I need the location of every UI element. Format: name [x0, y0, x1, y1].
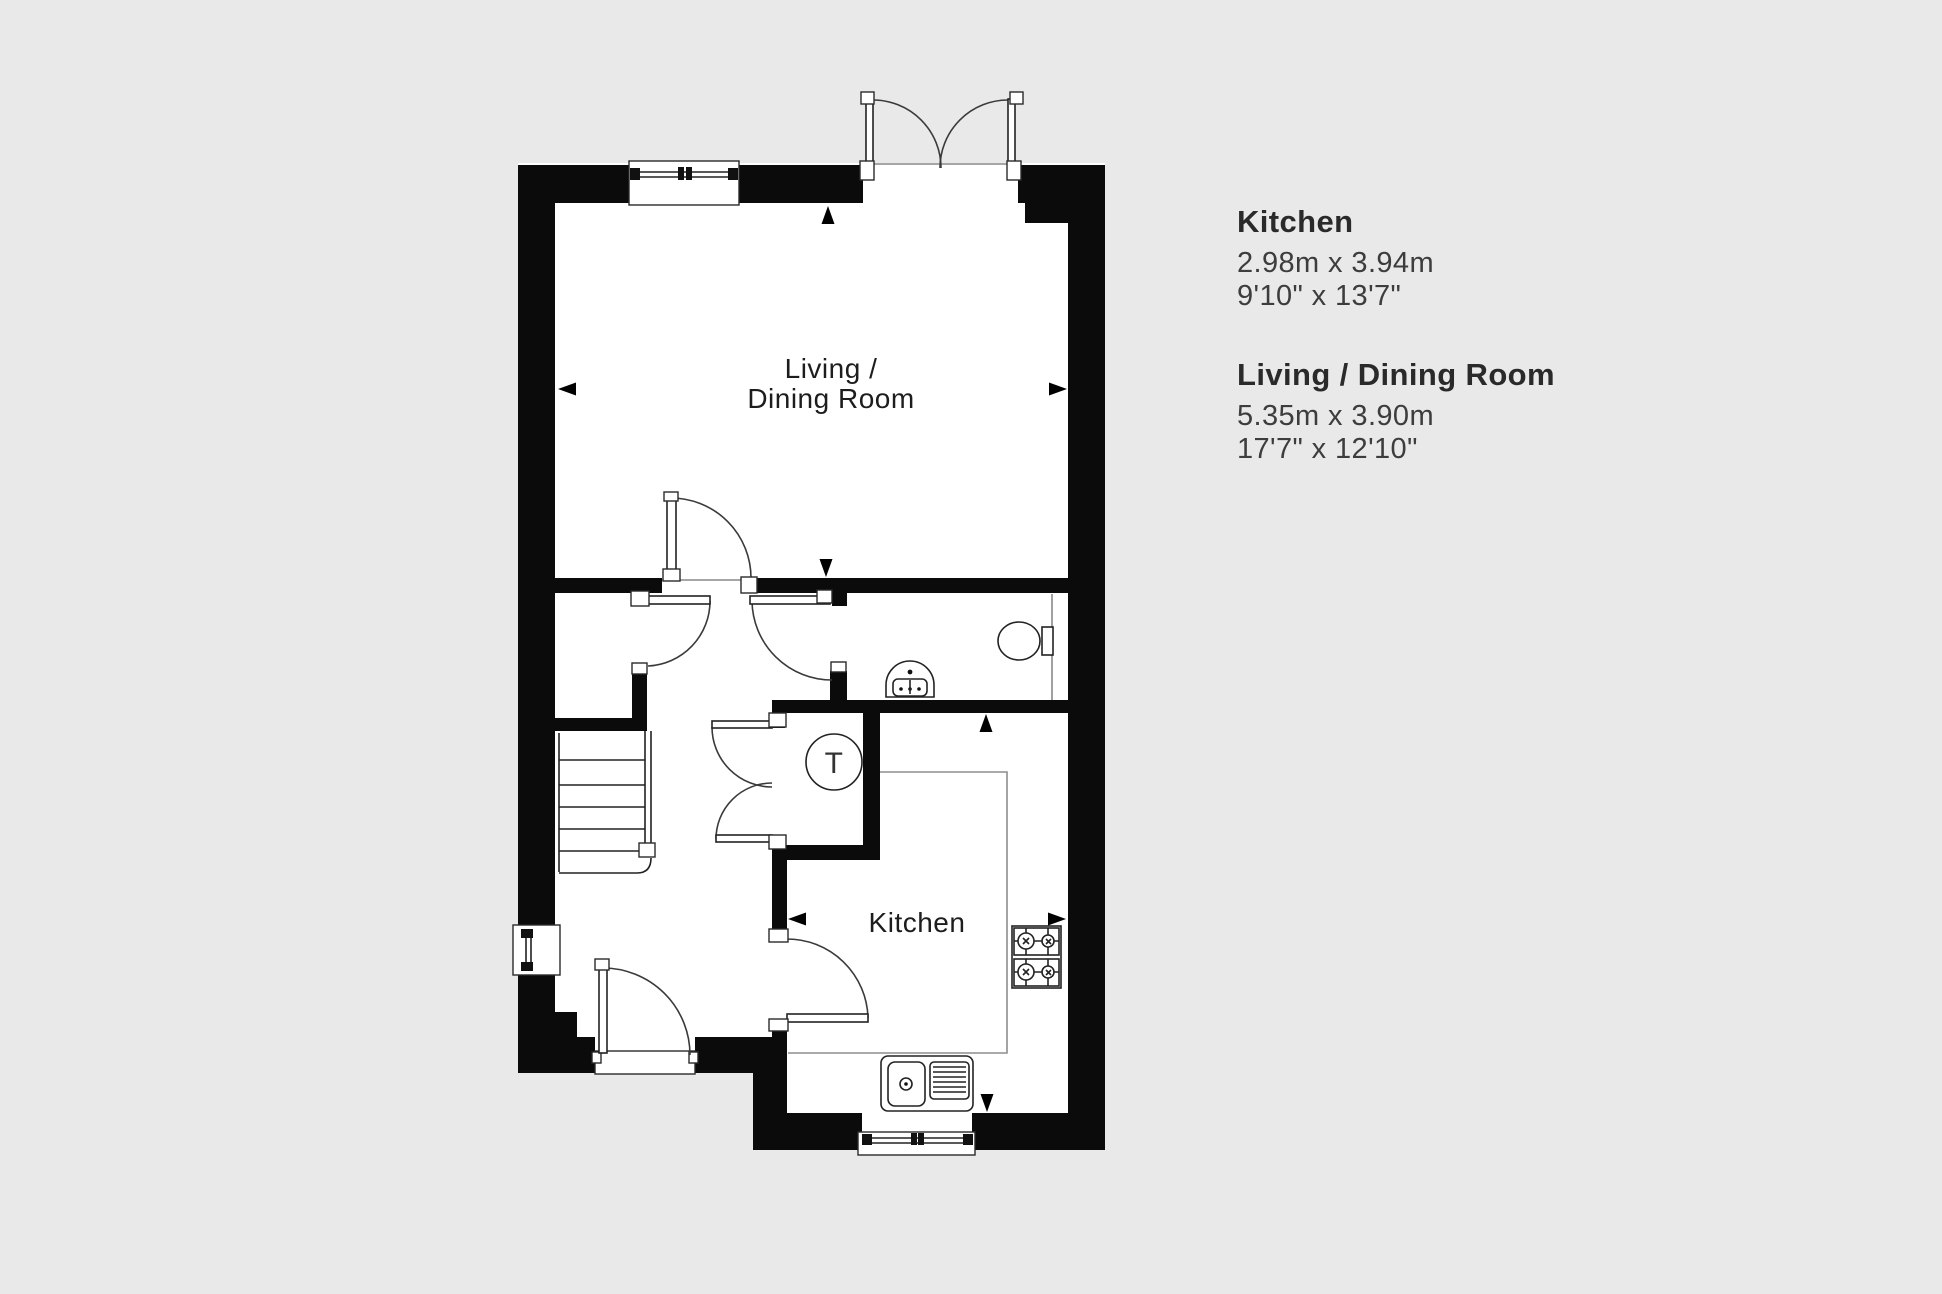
room-dimensions-panel: Kitchen 2.98m x 3.94m 9'10" x 13'7" Livi… [1237, 204, 1555, 510]
dryer-circle: T [806, 734, 862, 790]
legend-kitchen-metric: 2.98m x 3.94m [1237, 247, 1555, 280]
window-hall [513, 925, 560, 975]
kitchen-label: Kitchen [869, 907, 966, 938]
legend-kitchen: Kitchen 2.98m x 3.94m 9'10" x 13'7" [1237, 204, 1555, 313]
window-living-room [629, 161, 739, 205]
toilet-icon [998, 622, 1053, 660]
legend-living-dining-metric: 5.35m x 3.90m [1237, 400, 1555, 433]
legend-living-dining: Living / Dining Room 5.35m x 3.90m 17'7"… [1237, 357, 1555, 466]
sink-icon [881, 1056, 973, 1111]
window-kitchen [858, 1132, 975, 1155]
floorplan-page: T Living / Dining Room Kitchen Kitchen 2… [0, 0, 1942, 1294]
dryer-label: T [825, 747, 844, 780]
legend-kitchen-imperial: 9'10" x 13'7" [1237, 280, 1555, 313]
living-dining-room-label-line1: Living / [785, 353, 878, 384]
legend-kitchen-name: Kitchen [1237, 204, 1555, 240]
legend-living-dining-name: Living / Dining Room [1237, 357, 1555, 393]
legend-living-dining-imperial: 17'7" x 12'10" [1237, 433, 1555, 466]
floor-plan-svg: T Living / Dining Room Kitchen [0, 0, 1942, 1294]
hob-icon [1012, 926, 1061, 988]
living-dining-room-label-line2: Dining Room [747, 383, 914, 414]
